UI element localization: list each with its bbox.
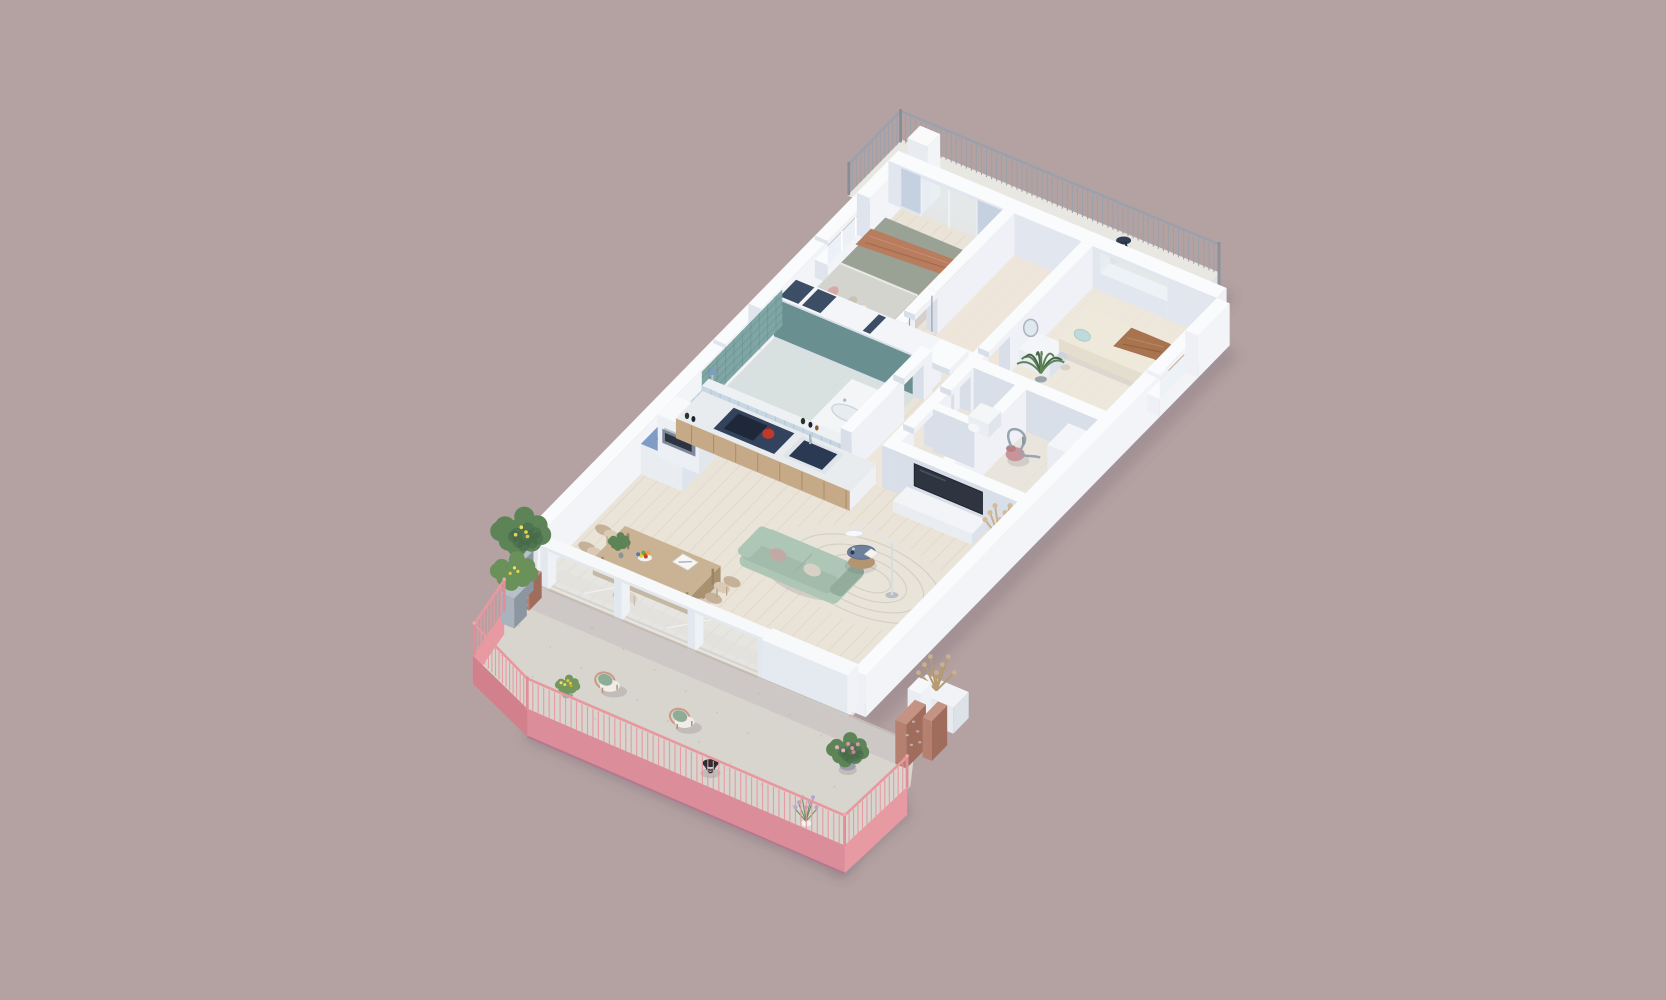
apartment-isometric-scene: [0, 0, 1666, 1000]
floorplan-3d-render: [0, 0, 1666, 1000]
